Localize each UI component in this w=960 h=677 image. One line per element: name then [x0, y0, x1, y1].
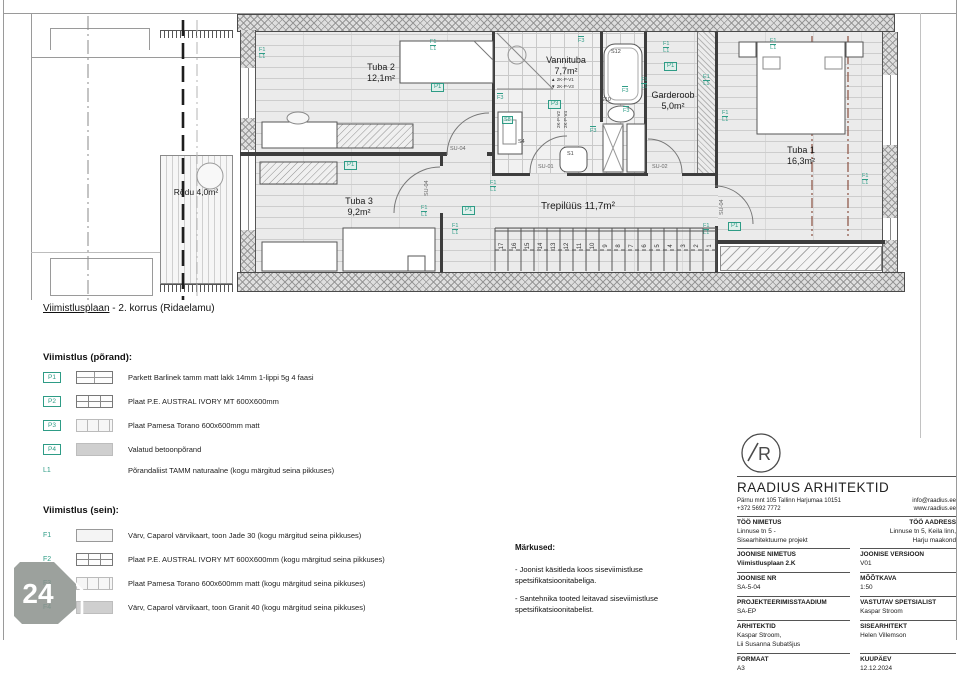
company-address: Pärnu mnt 105 Tallinn Harjumaa 10151 [737, 498, 841, 506]
legend-row: P4 Valatud betoonpõrand [43, 442, 201, 457]
swatch-tile-grid [76, 395, 113, 408]
field-value: Kaspar Stroom [860, 608, 956, 616]
finish-tag-pair: E1L1 [703, 74, 710, 87]
wall [715, 32, 718, 188]
finish-tag-pair: F1L1 [862, 173, 868, 186]
fixture-code: S4 [518, 139, 525, 145]
drawing-caption: Viimistlusplaan - 2. korrus (Ridaelamu) [43, 303, 215, 314]
swatch-parquet [76, 371, 113, 384]
field-value: A3 [737, 665, 850, 673]
field-label: SISEARHITEKT [860, 623, 956, 631]
door-code: SU-02 [652, 164, 668, 170]
wall [715, 226, 718, 272]
wall-segment [883, 145, 897, 218]
legend-text: Värv, Caparol värvikaart, toon Granit 40… [128, 603, 365, 612]
field-value: Viimistlusplaan 2.K [737, 560, 850, 568]
legend-code: L1 [43, 467, 69, 474]
finish-tag: P1 [431, 83, 444, 92]
legend-row: P1 Parkett Barlinek tamm matt lakk 14mm … [43, 370, 314, 385]
field-label: ARHITEKTID [737, 623, 850, 631]
wall [567, 173, 648, 176]
door-code: SU-04 [424, 180, 430, 196]
wall [715, 240, 885, 244]
field-label: FORMAAT [737, 656, 850, 664]
finish-tag-pair: F1L1 [452, 223, 458, 236]
door-code: SU-01 [538, 164, 554, 170]
field-label: TÖÖ NIMETUS [737, 519, 808, 527]
field-label: TÖÖ AADRESS [890, 519, 956, 527]
legend-text: Parkett Barlinek tamm matt lakk 14mm 1-l… [128, 373, 314, 382]
east-wall [882, 32, 898, 272]
room-label: Tuba 39,2m² [345, 196, 373, 217]
plan-annotations: Tuba 212,1m²Vannituba7,7m²Garderoob5,0m²… [0, 0, 960, 310]
floor-legend-title: Viimistlus (põrand): [43, 352, 132, 363]
legend-code: F1 [43, 532, 69, 539]
legend-code: P4 [43, 444, 61, 455]
swatch-paint [76, 529, 113, 542]
finish-tag: F3 [623, 106, 629, 114]
finish-tag: P3 [548, 100, 561, 109]
finish-tag: F3 [497, 93, 503, 101]
finish-tag: P1 [344, 161, 357, 170]
company-name: RAADIUS ARHITEKTID [737, 480, 956, 495]
west-wall [240, 30, 256, 272]
finish-tag: F3 [578, 36, 584, 44]
field-label: JOONISE NIMETUS [737, 551, 850, 559]
fixture-code: S8 [502, 116, 513, 124]
swatch-concrete [76, 443, 113, 456]
page-number-badge: 24 [4, 554, 90, 638]
legend-code: P2 [43, 396, 61, 407]
finish-tag-pair: F1L1 [641, 77, 647, 90]
room-label: Tuba 212,1m² [367, 62, 395, 83]
wall [492, 32, 495, 176]
room-label: Trepilüüs 11,7m² [541, 202, 615, 213]
legend-text: Plaat P.E. AUSTRAL IVORY MT 600X600mm [128, 397, 279, 406]
caption-title: Viimistlusplaan [43, 303, 110, 314]
vent-code: 2K-P-V2 [556, 111, 561, 128]
floor-plan: 1716151413121110987654321 Tuba 212,1m²Va… [0, 0, 960, 310]
field-value: Linnuse tn 5, Keila linn, [890, 528, 956, 536]
legend-text: Põrandaliist TAMM naturaalne (kogu märgi… [128, 466, 334, 475]
field-value: SA-5-04 [737, 584, 850, 592]
finish-tag-pair: F1L1 [490, 180, 496, 193]
finish-tag-pair: F1L1 [703, 223, 709, 236]
legend-row: P2 Plaat P.E. AUSTRAL IVORY MT 600X600mm [43, 394, 279, 409]
room-label: Vannituba7,7m² [546, 55, 586, 76]
room-label: Garderoob5,0m² [651, 90, 694, 111]
room-label: Tuba 116,3m² [787, 145, 815, 166]
swatch-tile [76, 419, 113, 432]
wall [682, 173, 718, 176]
legend-text: Valatud betoonpõrand [128, 445, 201, 454]
field-value: Sisearhitektuurne projekt [737, 537, 808, 545]
wall [644, 32, 647, 176]
finish-tag: F3 [622, 86, 628, 94]
finish-tag: F3 [590, 126, 596, 134]
wall [492, 173, 530, 176]
door-code: SU-04 [450, 146, 466, 152]
vent-code: ▼ 2K-P-V3 [551, 84, 574, 89]
legend-row: F3 Plaat Pamesa Torano 600x600mm matt (k… [43, 576, 365, 591]
vent-code: 2K-P-V4 [563, 111, 568, 128]
legend-code: P1 [43, 372, 61, 383]
legend-row: F4 Värv, Caparol värvikaart, toon Granit… [43, 600, 365, 615]
field-value: Harju maakond [890, 537, 956, 545]
legend-row: F1 Värv, Caparol värvikaart, toon Jade 3… [43, 528, 361, 543]
wall-segment [241, 30, 255, 68]
fixture-code: S12 [611, 49, 621, 55]
finish-tag-pair: F1L1 [663, 41, 669, 54]
field-value: 1:50 [860, 584, 956, 592]
wall [600, 32, 603, 122]
legend-text: Plaat Pamesa Torano 600x600mm matt (kogu… [128, 579, 365, 588]
field-label: MÕÕTKAVA [860, 575, 956, 583]
finish-tag: P1 [462, 206, 475, 215]
finish-tag-pair: F1L1 [421, 205, 427, 218]
wall [240, 152, 447, 156]
wall-segment [883, 240, 897, 272]
field-label: JOONISE NR [737, 575, 850, 583]
fixture-code: S1 [567, 151, 574, 157]
field-label: KUUPÄEV [860, 656, 956, 664]
company-email: info@raadius.ee [912, 498, 956, 506]
room-label: Rõdu 4,0m² [174, 187, 218, 198]
legend-row: F2 Plaat P.E. AUSTRAL IVORY MT 600X600mm… [43, 552, 385, 567]
company-phone: +372 5692 7772 [737, 506, 841, 514]
wall-legend-title: Viimistlus (sein): [43, 505, 119, 516]
logo-letter: R [758, 444, 771, 464]
finish-tag: P1 [728, 222, 741, 231]
door-code: SU-04 [719, 199, 725, 215]
fixture-code: S10 [601, 97, 611, 103]
legend-text: Plaat P.E. AUSTRAL IVORY MT 600X600mm (k… [128, 555, 385, 564]
company-website: www.raadius.ee [912, 506, 956, 514]
field-label: VASTUTAV SPETSIALIST [860, 599, 956, 607]
legend-text: Plaat Pamesa Torano 600x600mm matt [128, 421, 260, 430]
wall [440, 152, 443, 166]
field-label: JOONISE VERSIOON [860, 551, 956, 559]
vent-code: ▲ 2K-P-V1 [551, 77, 574, 82]
wall-segment [241, 118, 255, 150]
title-block: R RAADIUS ARHITEKTID Pärnu mnt 105 Talli… [737, 432, 956, 677]
wall [440, 213, 443, 272]
legend-text: Värv, Caparol värvikaart, toon Jade 30 (… [128, 531, 361, 540]
field-value: Kaspar Stroom, [737, 632, 850, 640]
badge-value: 24 [22, 578, 54, 609]
note-item: - Joonist käsitleda koos siseviimistluse… [515, 564, 695, 586]
caption-rest: - 2. korrus (Ridaelamu) [110, 303, 215, 314]
legend-row: P3 Plaat Pamesa Torano 600x600mm matt [43, 418, 260, 433]
finish-tag-pair: F1L1 [722, 110, 728, 123]
field-value: Helen Villemson [860, 632, 956, 640]
finish-tag: P1 [664, 62, 677, 71]
finish-tag-pair: F1L1 [259, 47, 265, 60]
field-value: Lii Susanna Subatšjus [737, 641, 850, 649]
legend-code: P3 [43, 420, 61, 431]
finish-tag-pair: F1L1 [430, 39, 436, 52]
notes-title: Märkused: [515, 543, 695, 552]
field-value: 12.12.2024 [860, 665, 956, 673]
field-label: PROJEKTEERIMISSTAADIUM [737, 599, 850, 607]
legend-row: L1 Põrandaliist TAMM naturaalne (kogu mä… [43, 463, 334, 478]
field-value: Linnuse tn 5 - [737, 528, 808, 536]
wall-segment [241, 230, 255, 272]
note-item: - Santehnika tooted leitavad siseviimist… [515, 593, 695, 615]
company-logo: R [740, 432, 782, 474]
wall-segment [883, 32, 897, 75]
finish-tag-pair: F1L1 [770, 38, 776, 51]
notes: Märkused: - Joonist käsitleda koos sisev… [515, 543, 695, 622]
field-value: V01 [860, 560, 956, 568]
field-value: SA-EP [737, 608, 850, 616]
